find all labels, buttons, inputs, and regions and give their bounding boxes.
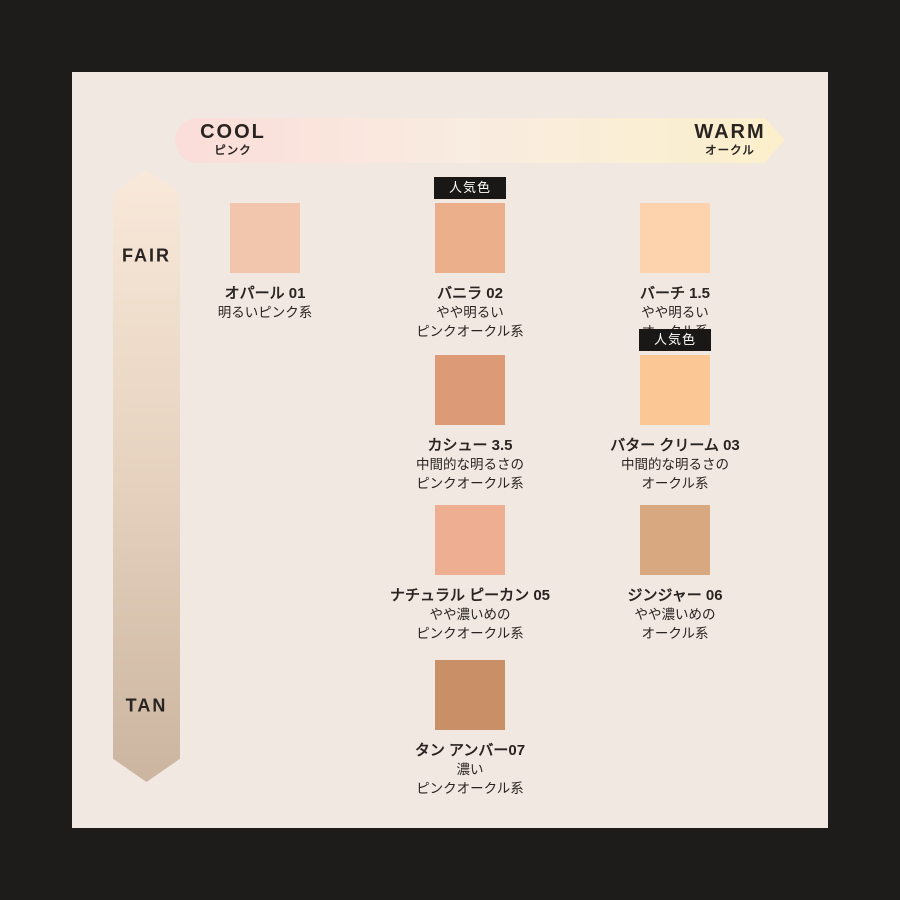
shade-swatch-cashew-3-5	[435, 355, 505, 425]
shade-card-vanilla-02: 人気色 バニラ 02 やや明るい ピンクオークル系	[365, 203, 575, 341]
shade-card-birch-1-5: バーチ 1.5 やや明るい オークル系	[570, 203, 780, 341]
shade-swatch-butter-cream-03	[640, 355, 710, 425]
shade-desc-line: 中間的な明るさの	[365, 455, 575, 474]
shade-desc-line: やや明るい	[365, 303, 575, 322]
popular-badge: 人気色	[639, 329, 711, 351]
pink-sublabel: ピンク	[200, 145, 266, 158]
shade-swatch-opal-01	[230, 203, 300, 273]
shade-card-butter-cream-03: 人気色 バター クリーム 03 中間的な明るさの オークル系	[570, 355, 780, 493]
shade-swatch-birch-1-5	[640, 203, 710, 273]
shade-card-natural-pecan-05: ナチュラル ピーカン 05 やや濃いめの ピンクオークル系	[365, 505, 575, 643]
shade-name: ナチュラル ピーカン 05	[365, 584, 575, 605]
shade-desc-line: ピンクオークル系	[365, 322, 575, 341]
shade-card-cashew-3-5: カシュー 3.5 中間的な明るさの ピンクオークル系	[365, 355, 575, 493]
shade-name: オパール 01	[160, 282, 370, 303]
shade-swatch-natural-pecan-05	[435, 505, 505, 575]
shade-desc-line: 濃い	[365, 760, 575, 779]
shade-desc-line: やや濃いめの	[570, 605, 780, 624]
shade-swatch-vanilla-02	[435, 203, 505, 273]
shade-card-ginger-06: ジンジャー 06 やや濃いめの オークル系	[570, 505, 780, 643]
shade-name: タン アンバー07	[365, 739, 575, 760]
cool-label: COOL	[200, 121, 266, 143]
shade-desc-line: ピンクオークル系	[365, 779, 575, 798]
tan-label: TAN	[126, 696, 168, 717]
shade-name: バター クリーム 03	[570, 434, 780, 455]
shade-desc-line: ピンクオークル系	[365, 474, 575, 493]
shade-name: ジンジャー 06	[570, 584, 780, 605]
shade-name: バーチ 1.5	[570, 282, 780, 303]
shade-desc-line: 中間的な明るさの	[570, 455, 780, 474]
cool-warm-axis: COOL ピンク WARM オークル	[175, 118, 765, 163]
page-background: COOL ピンク WARM オークル FAIR TAN オパール 01 明るいピ…	[0, 0, 900, 900]
shade-card-opal-01: オパール 01 明るいピンク系	[160, 203, 370, 322]
shade-desc-line: やや濃いめの	[365, 605, 575, 624]
shade-swatch-ginger-06	[640, 505, 710, 575]
cool-axis-label: COOL ピンク	[200, 121, 266, 158]
shade-desc-line: オークル系	[570, 474, 780, 493]
shade-chart-panel: COOL ピンク WARM オークル FAIR TAN オパール 01 明るいピ…	[72, 72, 828, 828]
shade-desc-line: ピンクオークル系	[365, 624, 575, 643]
shade-card-tan-amber-07: タン アンバー07 濃い ピンクオークル系	[365, 660, 575, 798]
shade-desc-line: 明るいピンク系	[160, 303, 370, 322]
warm-label: WARM	[694, 121, 765, 143]
warm-arrow-tip	[765, 118, 785, 162]
shade-name: バニラ 02	[365, 282, 575, 303]
shade-desc-line: オークル系	[570, 624, 780, 643]
shade-swatch-tan-amber-07	[435, 660, 505, 730]
popular-badge: 人気色	[434, 177, 506, 199]
ochre-sublabel: オークル	[694, 145, 765, 158]
shade-desc-line: やや明るい	[570, 303, 780, 322]
shade-name: カシュー 3.5	[365, 434, 575, 455]
warm-axis-label: WARM オークル	[694, 121, 765, 158]
